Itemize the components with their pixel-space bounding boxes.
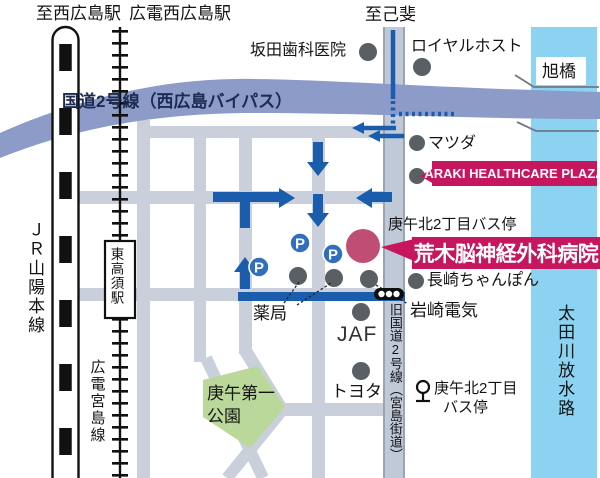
label-hiroden-miyajima-line: 広電宮島線	[87, 359, 107, 444]
right-arrow-shaft	[213, 192, 279, 202]
label-to-nishi-hiroshima: 至西広島駅	[36, 4, 121, 23]
label-toyota: トヨタ	[331, 381, 382, 403]
parking-letter-1: P	[295, 236, 305, 253]
label-pharmacy: 薬局	[253, 303, 287, 325]
toyota-dot	[352, 362, 370, 380]
label-busstop-north: 庚午北2丁目バス停	[388, 215, 516, 235]
bus-stop-icon	[416, 381, 430, 401]
up-arrow-shaft	[240, 272, 250, 289]
label-hiroden-nishi-hiroshima: 広電西広島駅	[129, 4, 231, 23]
down-arrow2-shaft	[313, 194, 323, 213]
araki-plaza-banner: ARAKI HEALTHCARE PLAZA	[432, 161, 597, 186]
label-old-route2: 旧国道2号線（宮島街道）	[386, 303, 403, 461]
label-higashi-takasu-station: 東高須駅	[107, 247, 125, 305]
label-asahi-bridge: 旭橋	[542, 61, 576, 83]
parking-letter-3: P	[254, 260, 264, 277]
access-map: P P P 至西広島駅広電西広島駅 至己斐 坂田歯科医院 ロイヤルホスト 旭橋 …	[0, 0, 600, 478]
parking-letter-2: P	[328, 247, 338, 264]
label-jaf: JAF	[337, 321, 377, 348]
left-arrow-h1-shaft	[372, 192, 392, 202]
label-busstop-south-line1: 庚午北2丁目	[434, 379, 517, 399]
street-v2b	[239, 126, 252, 354]
label-ota-river: 太田川放水路	[553, 304, 575, 418]
sakata-dental-dot	[359, 43, 377, 61]
label-sakata-dental: 坂田歯科医院	[250, 41, 346, 62]
label-route2-bypass: 国道2号線（西広島バイパス）	[62, 91, 292, 113]
jaf-dot	[352, 303, 370, 321]
label-matsuda: マツダ	[428, 134, 476, 155]
label-nagasaki-chanpon: 長崎ちゃんぽん	[427, 271, 539, 292]
street-v3	[312, 126, 325, 478]
label-busstop-south-line2: バス停	[443, 398, 488, 418]
pharmacy-dot2	[325, 269, 343, 287]
label-jr-sanyo-line: ＪＲ山陽本線	[23, 221, 45, 335]
down-arrow2-head	[307, 213, 329, 227]
street-v2	[194, 126, 206, 362]
iwasaki-denki-dot	[360, 270, 378, 288]
label-top-stations: 至西広島駅広電西広島駅	[36, 3, 231, 25]
label-park-line1: 庚午第一	[207, 383, 275, 405]
down-arrow1-head	[307, 162, 329, 176]
nagasaki-chanpon-dot	[408, 273, 424, 289]
traffic-light-icon	[374, 288, 404, 300]
right-arrow-stem	[240, 202, 250, 228]
royal-host-dot	[413, 58, 431, 76]
hospital-banner: 荒木脳神経外科病院	[412, 237, 600, 269]
matsuda-dot	[409, 135, 425, 151]
street-v1	[137, 120, 150, 478]
down-arrow1-shaft	[313, 142, 323, 162]
label-to-koi: 至己斐	[365, 4, 416, 26]
label-iwasaki-denki: 岩崎電気	[410, 300, 478, 322]
label-park-line2: 公園	[207, 406, 241, 428]
label-royal-host: ロイヤルホスト	[411, 37, 523, 58]
hospital-location-circle	[346, 229, 380, 263]
